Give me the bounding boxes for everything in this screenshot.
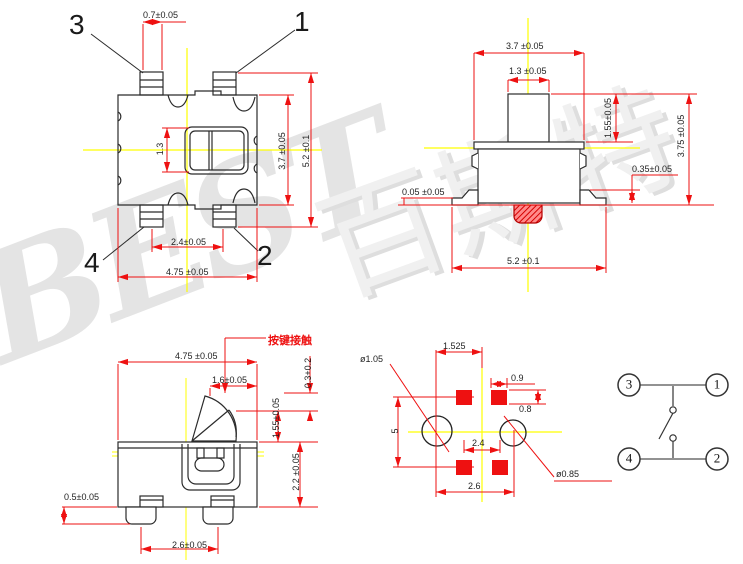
dim-front-top-width: 3.7 ±0.05: [506, 41, 543, 51]
dim-pcb-hole-pitch: 2.6: [468, 481, 481, 491]
dim-front-standoff: 0.05 ±0.05: [402, 187, 444, 197]
dim-top-body-width: 4.75 ±0.05: [166, 267, 208, 277]
dim-side-travel: 0.3+0.2: [303, 358, 313, 388]
dim-pcb-pad-offset: 1.525: [443, 341, 466, 351]
drawing-sheet: BEST 百斯特: [0, 0, 743, 564]
dim-top-overall-height: 5.2 ±0.1: [301, 135, 311, 167]
side-view-contact-callout: 按键接触: [268, 332, 312, 348]
schematic-pin3-label: 3: [626, 377, 633, 393]
dim-top-pin-pitch: 2.4±0.05: [171, 237, 206, 247]
dim-pcb-pad-height: 0.8: [519, 404, 532, 414]
front-view-linework: [398, 18, 714, 292]
dim-side-body-height: 2.2 ±0.05: [291, 453, 301, 490]
schematic-pin2-label: 2: [714, 451, 721, 467]
schematic-linework: [618, 374, 728, 470]
dim-top-pin-width: 0.7±0.05: [143, 10, 178, 20]
top-view-pin1-label: 1: [294, 8, 310, 36]
schematic-pin4-label: 4: [626, 451, 633, 467]
dim-front-lead-height: 0.35±0.05: [632, 164, 672, 174]
dim-side-pin-pitch: 2.6±0.05: [172, 540, 207, 550]
schematic-pin1-label: 1: [714, 377, 721, 393]
dim-pcb-pad-width: 0.9: [511, 373, 524, 383]
dim-pcb-hole-right-dia: ø0.85: [556, 469, 579, 479]
dim-side-lever-width: 1.6±0.05: [212, 375, 247, 385]
drawing-linework: [0, 0, 743, 564]
top-view-pin4-label: 4: [84, 249, 100, 277]
dim-side-lever-height: 1.55±0.05: [271, 398, 281, 438]
dim-side-pin-height: 0.5±0.05: [64, 492, 99, 502]
dim-pcb-row-span: 5: [390, 428, 400, 433]
dim-top-body-height: 3.7 ±0.05: [277, 132, 287, 169]
top-view-pin3-label: 3: [69, 11, 85, 39]
side-view-linework: [62, 338, 318, 560]
dim-pcb-pad-pitch-x: 2.4: [472, 438, 485, 448]
dim-front-stem-height: 1.55±0.05: [603, 98, 613, 138]
dim-front-overall-width: 5.2 ±0.1: [507, 256, 539, 266]
dim-top-slot-width: 1.3: [155, 143, 165, 156]
dim-front-stem-width: 1.3 ±0.05: [509, 66, 546, 76]
top-view-pin2-label: 2: [257, 242, 273, 270]
dim-side-body-width: 4.75 ±0.05: [175, 351, 217, 361]
dim-front-overall-height: 3.75 ±0.05: [676, 115, 686, 157]
dim-pcb-hole-left-dia: ø1.05: [360, 354, 383, 364]
